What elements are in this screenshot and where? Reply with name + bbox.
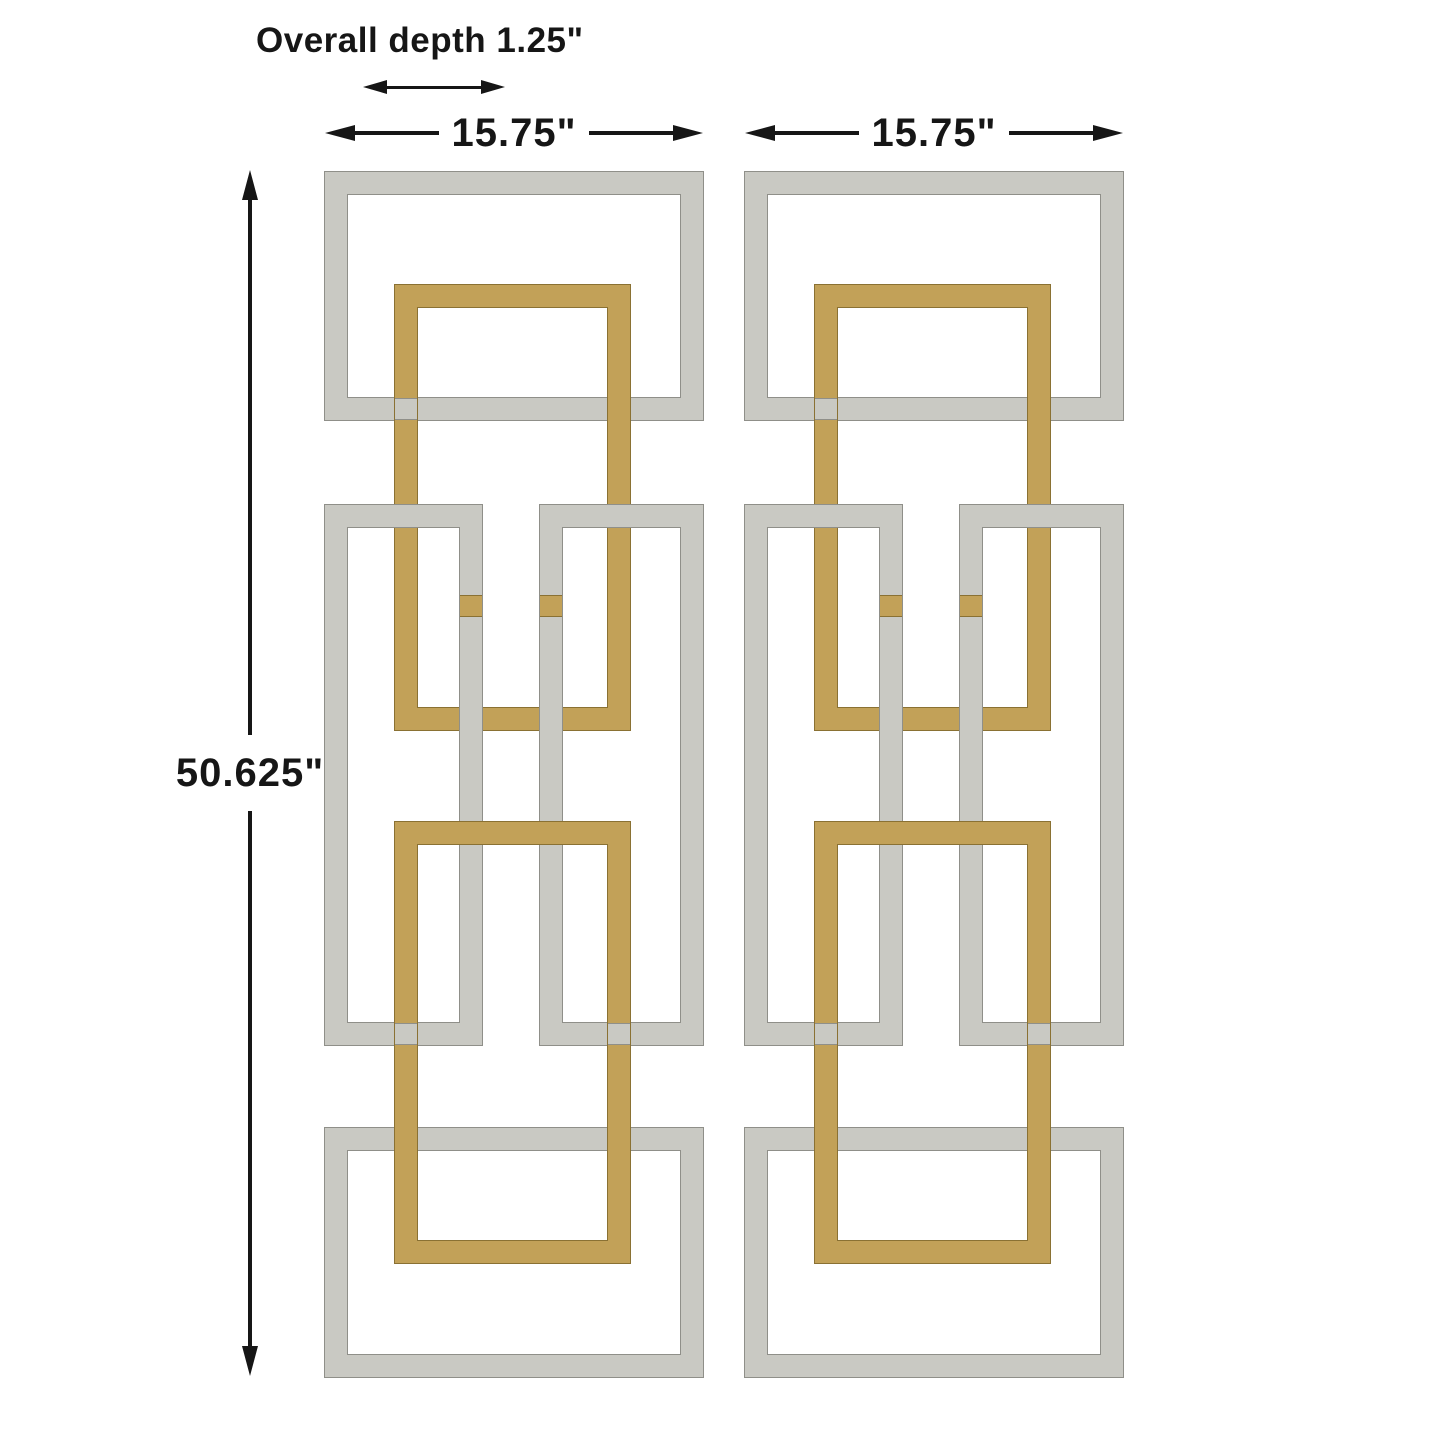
arrowhead-right-icon: [673, 125, 703, 141]
weave-overlap-patch: [1028, 1023, 1050, 1045]
height-dimension: 50.625": [234, 170, 266, 1376]
weave-overlap-patch: [460, 595, 482, 617]
weave-overlap-patch: [815, 398, 837, 420]
dimension-line: [1009, 131, 1093, 135]
product-dimension-diagram: Overall depth 1.25" 15.75" 15.75" 50.625…: [0, 0, 1445, 1445]
arrowhead-left-icon: [325, 125, 355, 141]
weave-overlap-patch: [815, 1023, 837, 1045]
weave-overlap-patch: [395, 1023, 417, 1045]
arrowhead-left-icon: [745, 125, 775, 141]
weave-overlap-patch: [960, 595, 982, 617]
arrowhead-right-icon: [1093, 125, 1123, 141]
dimension-line: [589, 131, 673, 135]
width-dimension-value: 15.75": [859, 113, 1008, 153]
arrowhead-left-icon: [363, 80, 387, 94]
dimension-line: [387, 86, 481, 89]
width-dimension-right: 15.75": [745, 112, 1123, 154]
dimension-line: [775, 131, 859, 135]
weave-overlap-patch: [540, 595, 562, 617]
wall-panel-right: [745, 172, 1123, 1377]
gold-frame-lower: [815, 822, 1050, 1263]
weave-overlap-patch: [880, 595, 902, 617]
width-dimension-left: 15.75": [325, 112, 703, 154]
depth-double-arrow-icon: [363, 79, 505, 95]
height-dimension-value: 50.625": [172, 735, 328, 811]
width-dimension-value: 15.75": [439, 113, 588, 153]
wall-panel-left: [325, 172, 703, 1377]
dimension-line: [355, 131, 439, 135]
gold-frame-lower: [395, 822, 630, 1263]
depth-dimension-label: Overall depth 1.25": [256, 21, 584, 61]
arrowhead-down-icon: [242, 1346, 258, 1376]
arrowhead-right-icon: [481, 80, 505, 94]
weave-overlap-patch: [395, 398, 417, 420]
arrowhead-up-icon: [242, 170, 258, 200]
weave-overlap-patch: [608, 1023, 630, 1045]
